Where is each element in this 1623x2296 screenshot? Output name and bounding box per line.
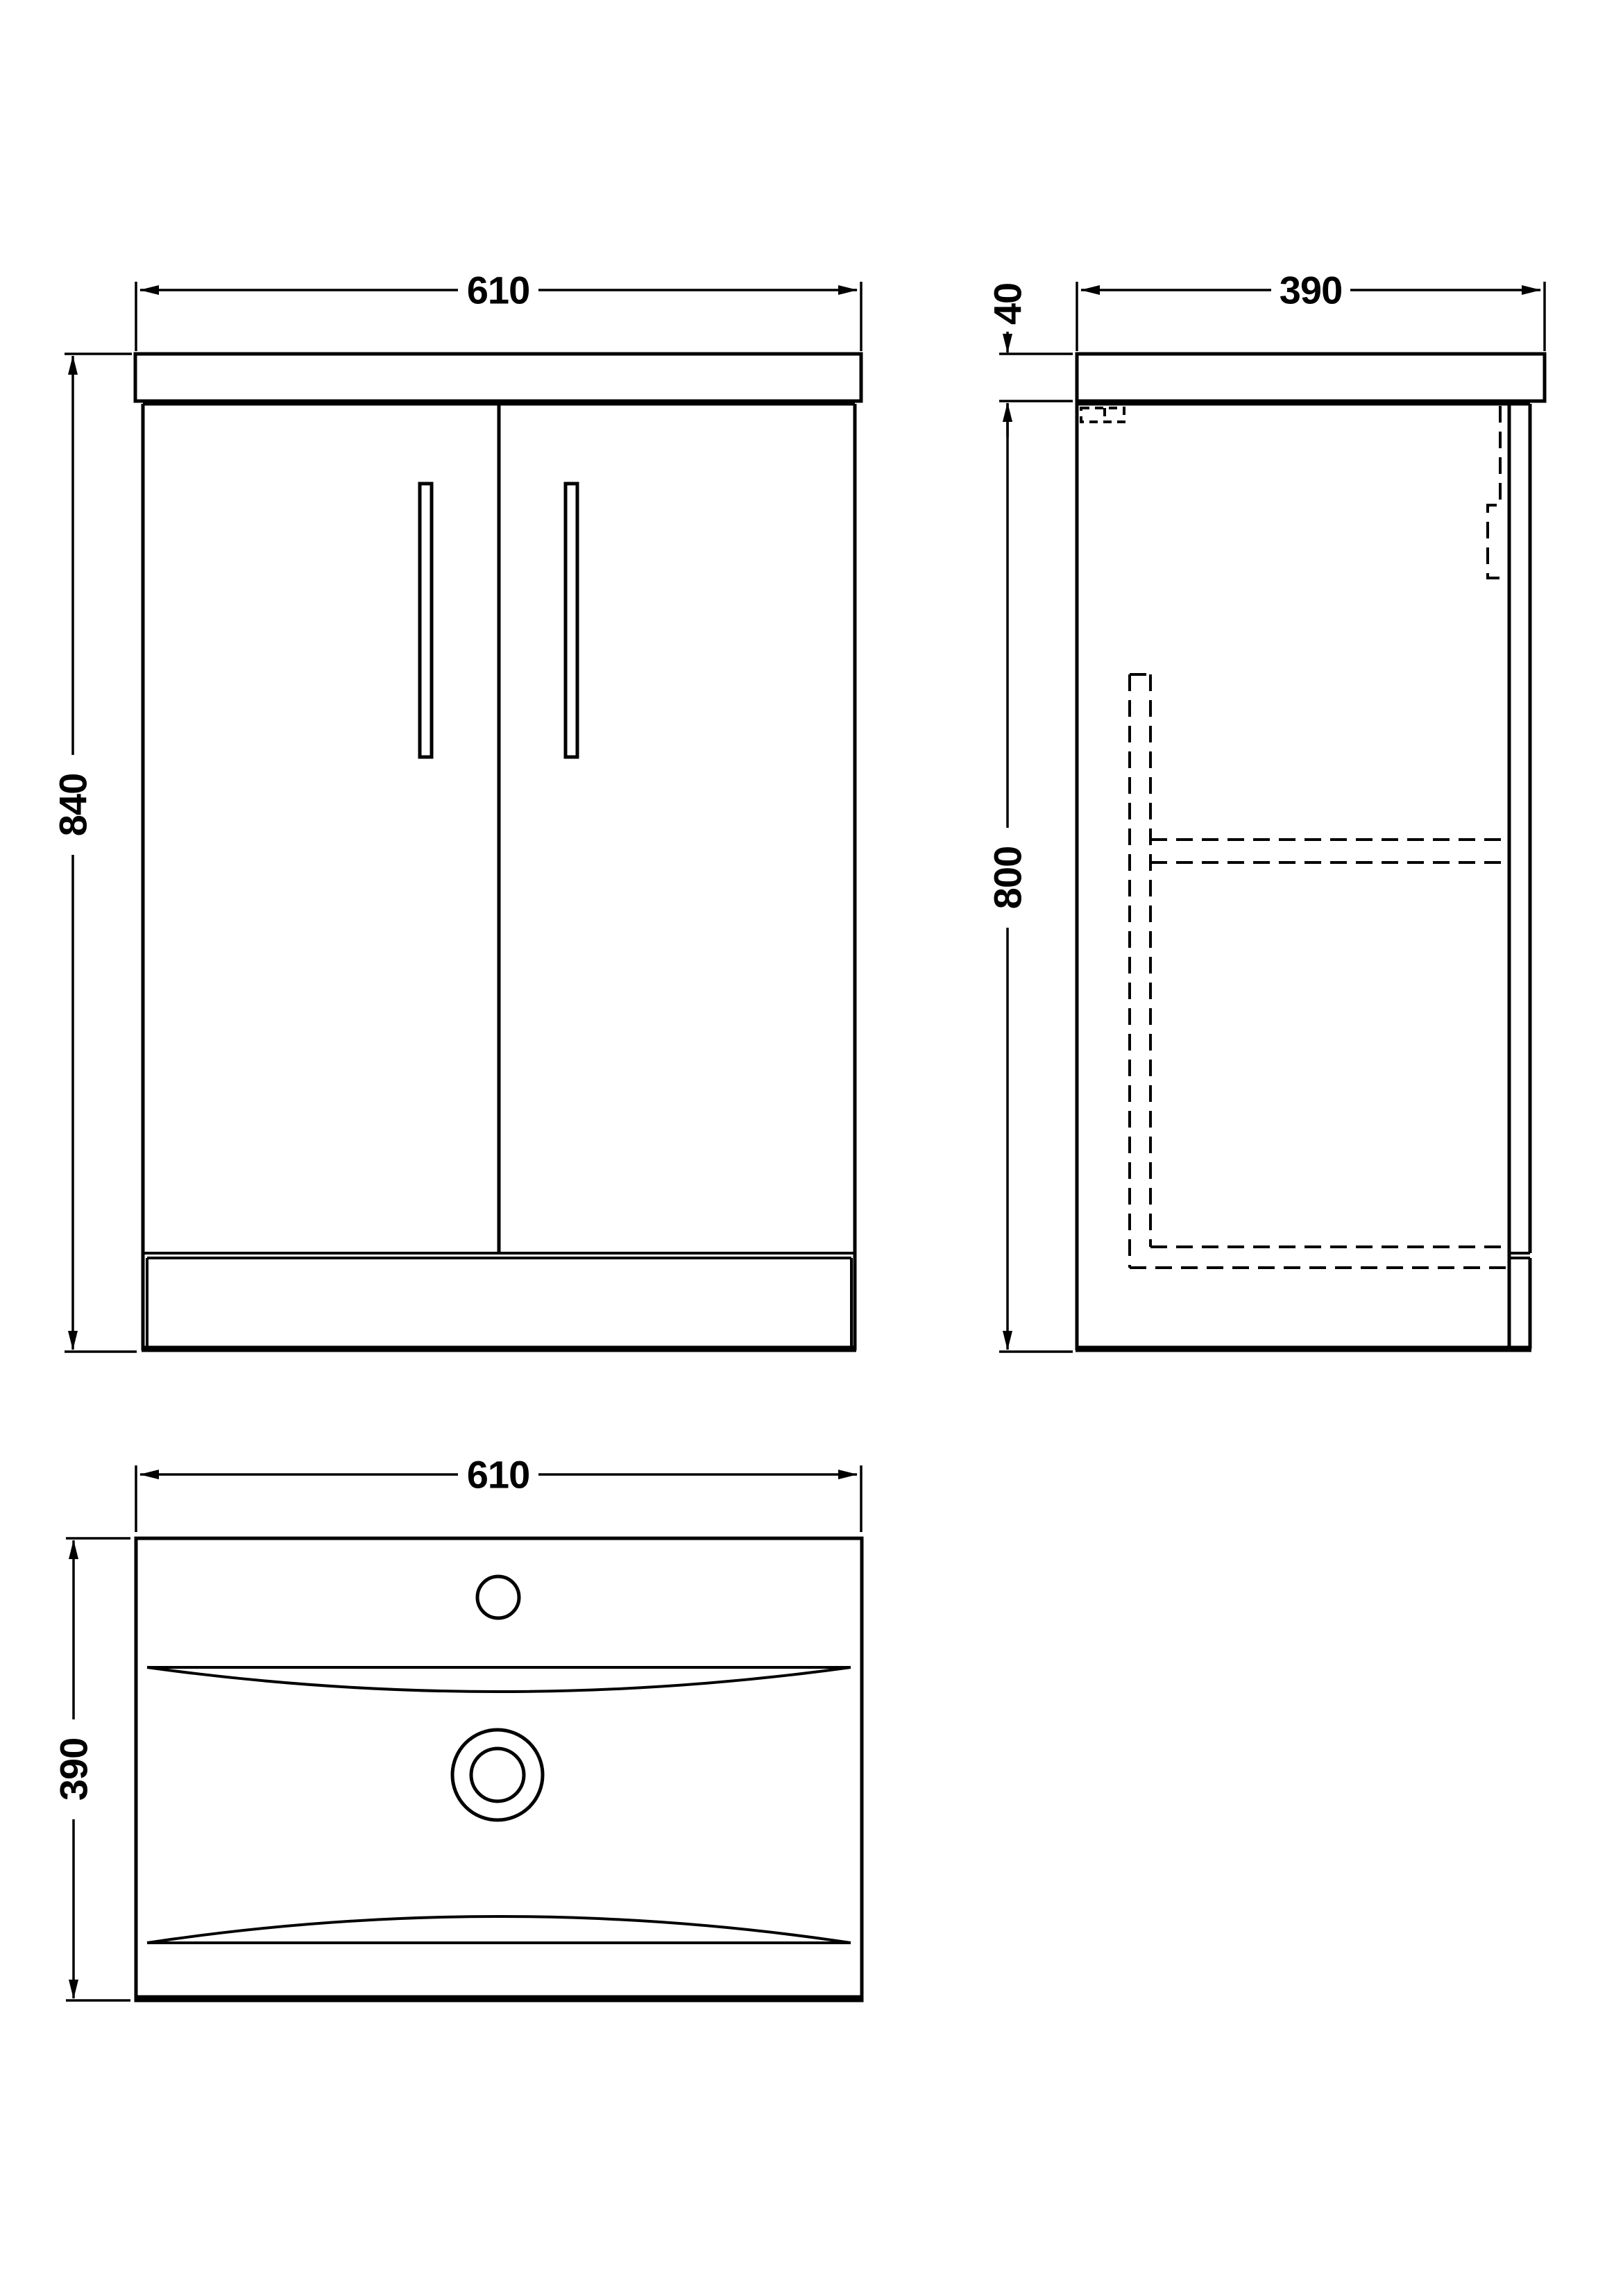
cabinet-height-label: 800 — [986, 847, 1030, 909]
worktop-thickness-dimension: 40 — [986, 283, 1073, 437]
front-width-label: 610 — [467, 269, 529, 312]
right-door-handle — [566, 484, 577, 757]
worktop-thickness-label: 40 — [986, 283, 1030, 325]
plan-width-dimension: 610 — [136, 1453, 861, 1533]
front-worktop — [135, 354, 861, 401]
rear-deck-curve — [147, 1667, 851, 1692]
drawing-sheet: 610 840 — [0, 0, 1623, 2296]
front-height-label: 840 — [51, 774, 95, 836]
side-hidden-details — [1081, 406, 1509, 1268]
plan-depth-label: 390 — [52, 1738, 96, 1801]
waste-inner — [471, 1749, 524, 1801]
plan-width-label: 610 — [467, 1453, 529, 1497]
side-depth-label: 390 — [1280, 269, 1342, 312]
door-edge-hidden — [1488, 406, 1503, 578]
front-height-dimension: 840 — [51, 354, 137, 1352]
left-door-handle — [420, 484, 432, 757]
side-worktop — [1077, 354, 1545, 401]
tap-hole — [477, 1576, 519, 1618]
front-width-dimension: 610 — [136, 269, 861, 352]
plan-view: 610 390 — [52, 1453, 863, 2001]
hanging-rail-hidden — [1081, 408, 1124, 422]
side-depth-dimension: 390 — [1077, 269, 1545, 352]
front-deck-curve — [147, 1916, 851, 1943]
cabinet-height-dimension: 800 — [986, 403, 1073, 1352]
front-view: 610 840 — [51, 269, 862, 1352]
vanity-technical-drawing: 610 840 — [0, 0, 1623, 2296]
side-view: 390 40 800 — [986, 269, 1545, 1352]
plan-depth-dimension: 390 — [52, 1538, 131, 2000]
waste-outer — [452, 1730, 543, 1820]
